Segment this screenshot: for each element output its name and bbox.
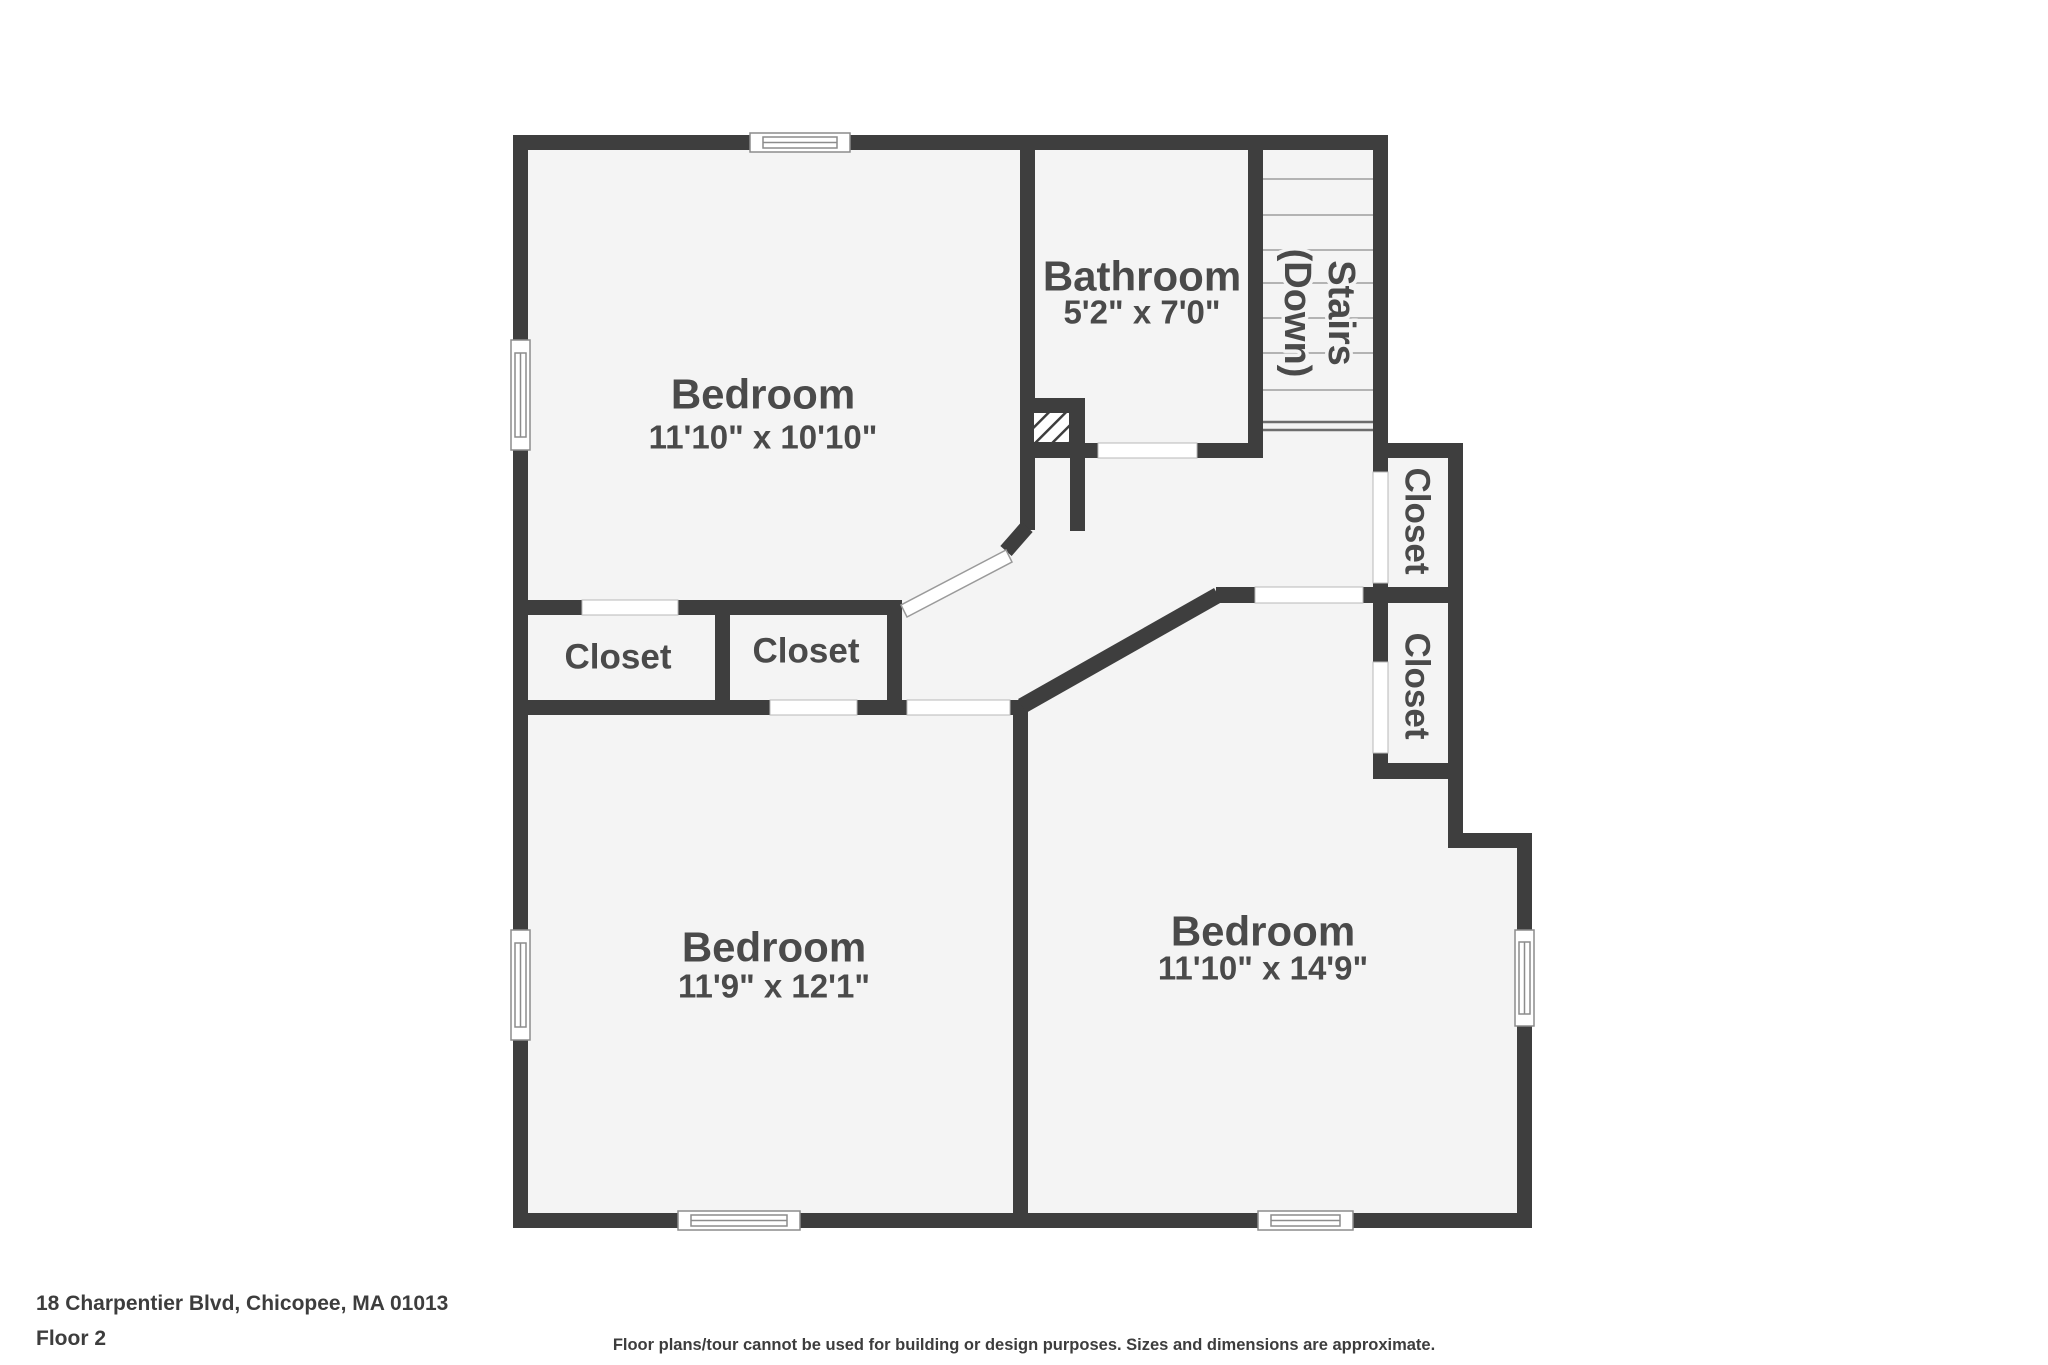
bathroom-door-opening	[1098, 443, 1197, 458]
bathroom-dims: 5'2" x 7'0"	[1063, 294, 1220, 331]
window-left-lower	[511, 930, 530, 1040]
bedroom-bottom-left-door-opening	[907, 700, 1010, 715]
bedroom-bottom-right-door-opening	[1255, 587, 1363, 603]
window-bottom-left	[678, 1211, 800, 1230]
mid-closet-right-opening	[770, 700, 857, 715]
closet-mid-left-label: Closet	[565, 638, 672, 677]
disclaimer-text: Floor plans/tour cannot be used for buil…	[0, 1336, 2048, 1355]
address-text: 18 Charpentier Blvd, Chicopee, MA 01013	[36, 1292, 448, 1316]
bedroom-bottom-left-dims: 11'9" x 12'1"	[678, 968, 870, 1005]
bedroom-bottom-left-name: Bedroom	[682, 924, 866, 971]
closet-right-upper-label: Closet	[1398, 468, 1437, 575]
closet-right-lower-label: Closet	[1398, 633, 1437, 740]
closet-right-upper-opening	[1373, 472, 1388, 583]
bedroom-bottom-right-dims: 11'10" x 14'9"	[1158, 950, 1368, 987]
bedroom-top-left-dims: 11'10" x 10'10"	[649, 419, 878, 456]
mid-closet-left-opening	[582, 600, 678, 615]
window-top	[750, 133, 850, 152]
bedroom-top-left-name: Bedroom	[671, 371, 855, 418]
stairs-label-line2: (Down)	[1276, 249, 1318, 378]
window-right	[1515, 930, 1534, 1026]
closet-mid-right-label: Closet	[753, 632, 860, 671]
closet-right-lower-opening	[1373, 662, 1388, 753]
floor-plan-drawing: Bedroom 11'10" x 10'10" Bathroom 5'2" x …	[0, 0, 2048, 1365]
bathroom-name: Bathroom	[1043, 253, 1241, 300]
floor-plan-page: Bedroom 11'10" x 10'10" Bathroom 5'2" x …	[0, 0, 2048, 1365]
chimney-hatch	[1033, 412, 1070, 443]
window-left-upper	[511, 340, 530, 450]
bedroom-bottom-right-name: Bedroom	[1171, 908, 1355, 955]
stairs-label-line1: Stairs	[1320, 260, 1362, 366]
window-bottom-right	[1258, 1211, 1353, 1230]
